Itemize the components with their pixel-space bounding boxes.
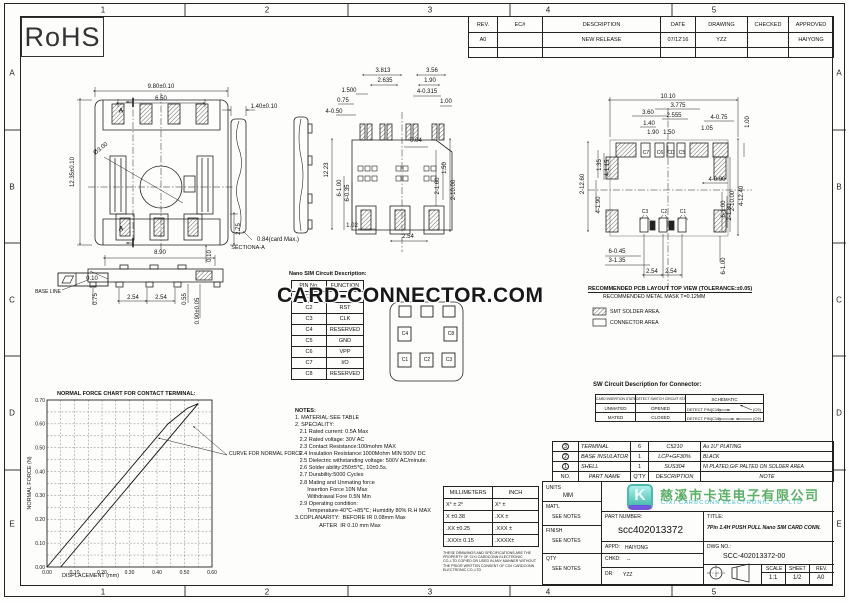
sim-pad-label: C8 — [448, 331, 454, 337]
company-logo-icon: K — [627, 484, 653, 510]
rev-cell: 07/12'16 — [661, 33, 696, 48]
dim-label: 1.35 — [597, 159, 603, 171]
dim-label: 2.54 — [127, 295, 139, 301]
title-label: TITLE: — [707, 514, 724, 520]
dim-label: 4-0.75 — [710, 115, 727, 121]
dim-label: 1.90 — [647, 130, 659, 136]
copyright-disclaimer: THESE DRAWINGS AND SPECIFICATIONS ARE TH… — [443, 551, 537, 572]
dr-label: DR: — [605, 571, 614, 577]
zone-col-label: 5 — [712, 588, 716, 597]
dim-label: 1.00 — [745, 116, 751, 128]
units-label: UNITS — [546, 485, 561, 491]
drawing-sheet: 0.000.100.200.300.400.500.600.000.100.20… — [0, 0, 850, 601]
matl-value: SEE NOTES — [552, 514, 581, 520]
zone-row-label: D — [9, 409, 15, 418]
dim-label: 3-1.35 — [608, 258, 625, 264]
rev-header: CHECKED — [748, 17, 789, 33]
notes-block: NOTES: 1. MATERIAL:SEE TABLE 2. SPECIALI… — [295, 408, 431, 530]
scale-label: SCALE — [766, 566, 782, 572]
pad-label: C1 — [680, 209, 686, 215]
dim-label: 2-1.60 — [435, 177, 441, 194]
rev-header: DESCRIPTION — [543, 17, 661, 33]
section-title: SECTIONA-A — [231, 245, 265, 251]
dim-label: 0.75 — [93, 293, 99, 305]
pcb-note: RECOMMENDED METAL MASK T=0.12MM — [603, 294, 705, 300]
dim-label: 6.50 — [155, 96, 167, 102]
zone-row-label: E — [9, 520, 14, 529]
rev-label: REV. — [816, 566, 827, 572]
rev-cell — [498, 33, 543, 48]
dim-label: 9.80±0.10 — [148, 84, 175, 90]
dim-label: 0.04 — [410, 138, 422, 144]
dim-label: 1.500 — [341, 88, 356, 94]
sw-schematic-gnd-label: (C9) — [753, 416, 761, 421]
zone-col-label: 3 — [428, 588, 432, 597]
revision-table: REV. EC# DESCRIPTION DATE DRAWING CHECKE… — [468, 16, 834, 58]
zone-col-label: 4 — [546, 588, 550, 597]
zone-row-label: C — [9, 296, 15, 305]
scale-value: 1:1 — [769, 575, 777, 581]
sw-table-title: SW Circuit Description for Connector: — [593, 382, 701, 388]
legend-connector-label: CONNECTOR AREA — [610, 320, 659, 326]
rev-header: APPROVED — [789, 17, 834, 33]
dim-label: 4-1.15 — [605, 159, 611, 176]
dim-label: 3.60 — [642, 110, 654, 116]
sim-pad-label: C3 — [446, 357, 452, 363]
appd-value: HAIYONG — [625, 545, 648, 551]
dim-label: 1.40±0.10 — [251, 104, 278, 110]
dim-label: 0.84(card Max.) — [257, 237, 299, 243]
dim-label: 0.90±0.05 — [195, 298, 201, 325]
dim-label: 3.813 — [375, 68, 390, 74]
dim-label: 4-0.50 — [325, 109, 342, 115]
dim-label: 1.05 — [701, 126, 713, 132]
finish-label: FINISH — [546, 528, 562, 534]
units-value: MM — [563, 493, 573, 499]
pcb-note: RECOMMENDED PCB LAYOUT TOP VIEW (TOLERAN… — [588, 286, 752, 293]
flatness-value: 0.10 — [86, 276, 98, 282]
sw-schematic-pin-label: DETECT PIN(C10) — [687, 416, 721, 421]
zone-col-label: 4 — [546, 6, 550, 15]
pad-label: CD — [667, 150, 674, 156]
sim-pad-label: C1 — [402, 357, 408, 363]
dim-label: 1.02 — [346, 223, 358, 229]
chart-xlabel: DISPLACEMENT (mm) — [62, 573, 119, 579]
dim-label: 4-12.40 — [739, 186, 745, 206]
dim-label: 12.23 — [324, 162, 330, 177]
zone-row-label: A — [836, 69, 841, 78]
dwg-no-value: SCC-402013372-00 — [723, 553, 785, 560]
title-value: 7Pin 1.4H PUSH PULL Nano SIM CARD CONN. — [707, 525, 821, 531]
sw-circuit-table: CARD INSERTION STATE DETECT SWITCH CIRCU… — [595, 394, 764, 422]
pad-label: C7 — [643, 150, 649, 156]
rev-header: EC# — [498, 17, 543, 33]
notes-title: NOTES: — [295, 408, 431, 415]
pin-table-title: Nano SIM Circuit Description: — [289, 271, 367, 277]
rev-header: DRAWING — [696, 17, 748, 33]
card-connector-watermark: CARD-CONNECTOR.COM — [277, 284, 543, 308]
appd-label: APPD: — [605, 544, 620, 550]
dim-label: 2.54 — [155, 295, 167, 301]
rev-value: A0 — [817, 575, 824, 581]
pad-label: C3 — [642, 209, 648, 215]
dim-label: 3.775 — [670, 103, 685, 109]
dim-label: 6-0.45 — [608, 249, 625, 255]
zone-row-label: A — [9, 69, 14, 78]
rev-cell — [469, 48, 498, 58]
dim-label: 3.56 — [426, 68, 438, 74]
dim-label: 1.00 — [440, 99, 452, 105]
zone-row-label: B — [9, 183, 14, 192]
company-name-en: CIXI CARDCONN ELECTRONIC CO. LTD — [661, 500, 802, 506]
dim-label: 2.75 — [236, 223, 242, 235]
zone-col-label: 3 — [428, 6, 432, 15]
section-letter: A — [119, 226, 124, 233]
sw-schematic-gnd-label: (C9) — [753, 407, 761, 412]
chkd-label: CHKD: — [605, 556, 621, 562]
rev-cell — [748, 33, 789, 48]
dim-label: 0.55 — [182, 293, 188, 305]
zone-col-label: 5 — [712, 6, 716, 15]
sw-schematic-pin-label: DETECT PIN(C10) — [687, 407, 721, 412]
dim-label: 2.635 — [377, 78, 392, 84]
dim-label: 1.50 — [442, 162, 448, 174]
section-letter: A — [119, 108, 124, 115]
dim-label: 1.90 — [424, 78, 436, 84]
chart-ylabel: NORMAL FORCE (N) — [27, 456, 33, 509]
chart-annotation: CURVE FOR NORMAL FORCE — [229, 451, 303, 457]
rev-cell: NEW RELEASE — [543, 33, 661, 48]
circled-number: 1 — [562, 463, 569, 470]
dim-label: 2-10.00 — [451, 180, 457, 200]
dim-label: 6-1.00 — [721, 257, 727, 274]
chart-title: NORMAL FORCE CHART FOR CONTACT TERMINAL: — [57, 391, 196, 397]
dim-label: 2.555 — [666, 113, 681, 119]
dim-label: 1.40 — [643, 121, 655, 127]
dim-label: 2.54 — [646, 269, 658, 275]
zone-col-label: 2 — [265, 588, 269, 597]
qty-label: QTY — [546, 556, 556, 562]
tolerance-table: MILLIMETERSINCH X° ± 2°X° ± X ±0.38.XX ±… — [443, 486, 539, 547]
sheet-label: SHEET — [789, 566, 806, 572]
sheet-value: 1/2 — [793, 575, 801, 581]
baseline-label: BASE LINE — [35, 289, 61, 295]
parts-table: 3 TERMINAL 6 C5210 Au 1U" PLATING 2 BASE… — [552, 441, 834, 482]
pad-label: C2 — [661, 209, 667, 215]
dim-label: 4-0.90 — [708, 177, 725, 183]
sim-pad-label: C2 — [424, 357, 430, 363]
zone-row-label: D — [836, 409, 842, 418]
part-number-value: scc402013372 — [618, 525, 683, 536]
rev-cell: HAIYONG — [789, 33, 834, 48]
dim-label: 2.54 — [402, 234, 414, 240]
zone-col-label: 1 — [101, 588, 105, 597]
legend-smt-label: SMT SOLDER AREA. — [610, 309, 660, 315]
part-number-label: PART NUMBER: — [605, 514, 642, 520]
pad-label: C5 — [679, 150, 685, 156]
rohs-badge: RoHS — [21, 17, 104, 57]
dim-label: 6-1.00 — [337, 179, 343, 196]
circled-number: 2 — [562, 453, 569, 460]
chkd-value: -- — [627, 557, 630, 563]
dim-label: 12.35±0.10 — [70, 157, 76, 187]
dim-label: 0.75 — [337, 98, 349, 104]
dim-label: 1.50 — [663, 130, 675, 136]
zone-row-label: C — [836, 296, 842, 305]
rev-header: REV. — [469, 17, 498, 33]
dim-label: 2-1.80 — [727, 203, 733, 220]
dim-label: 2.54 — [665, 269, 677, 275]
dim-label: 4-0.315 — [417, 89, 437, 95]
zone-row-label: E — [836, 520, 841, 529]
zone-col-label: 2 — [265, 6, 269, 15]
dim-label: 2-12.60 — [580, 174, 586, 194]
zone-col-label: 1 — [101, 6, 105, 15]
dr-value: YZZ — [623, 572, 632, 578]
finish-value: SEE NOTES — [552, 538, 581, 544]
pad-label: C6 — [657, 150, 663, 156]
dwg-no-label: DWG NO.: — [707, 544, 731, 550]
dim-label: 8.90 — [154, 250, 166, 256]
matl-label: MAT'L — [546, 504, 560, 510]
rev-cell: A0 — [469, 33, 498, 48]
dim-label: 6-0.35 — [345, 184, 351, 201]
rev-cell: YZZ — [696, 33, 748, 48]
dim-label: 10.10 — [660, 94, 675, 100]
sim-pad-label: C4 — [402, 331, 408, 337]
dim-label: 0.10 — [207, 250, 213, 262]
zone-row-label: B — [836, 183, 841, 192]
dim-label: 4-1.90 — [596, 196, 602, 213]
qty-value: SEE NOTES — [552, 566, 581, 572]
rev-header: DATE — [661, 17, 696, 33]
circled-number: 3 — [562, 443, 569, 450]
